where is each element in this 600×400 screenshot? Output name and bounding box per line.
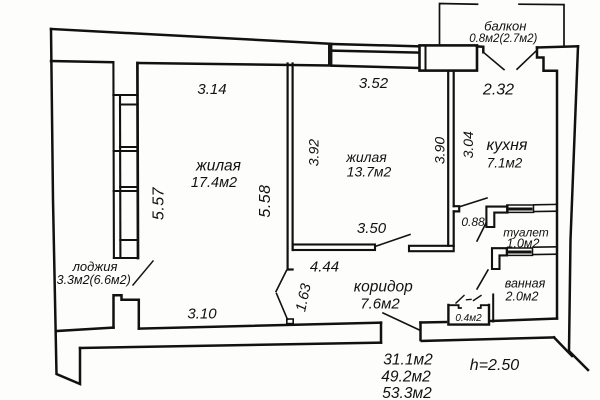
svg-text:0.88: 0.88 (461, 215, 485, 229)
svg-text:3.3м2(6.6м2): 3.3м2(6.6м2) (57, 273, 131, 287)
svg-text:балкон: балкон (484, 19, 526, 34)
svg-text:жилая: жилая (195, 158, 241, 175)
svg-text:3.14: 3.14 (197, 81, 226, 98)
svg-text:h=2.50: h=2.50 (470, 357, 519, 374)
svg-text:7.6м2: 7.6м2 (360, 296, 400, 313)
svg-text:ванная: ванная (505, 277, 546, 291)
svg-text:1.63: 1.63 (293, 282, 315, 313)
svg-text:0.8м2(2.7м2): 0.8м2(2.7м2) (469, 33, 537, 45)
svg-text:53.3м2: 53.3м2 (382, 385, 432, 400)
svg-text:3.92: 3.92 (306, 139, 322, 166)
svg-text:жилая: жилая (345, 149, 387, 165)
svg-text:2.0м2: 2.0м2 (505, 290, 539, 304)
svg-text:3.90: 3.90 (432, 137, 448, 164)
svg-text:4.44: 4.44 (310, 259, 339, 276)
svg-text:31.1м2: 31.1м2 (383, 352, 433, 369)
svg-text:3.52: 3.52 (359, 75, 389, 92)
svg-text:лоджия: лоджия (72, 259, 118, 274)
svg-text:коридор: коридор (354, 279, 413, 296)
svg-text:5.57: 5.57 (151, 186, 168, 220)
svg-text:13.7м2: 13.7м2 (347, 164, 392, 180)
svg-text:кухня: кухня (487, 137, 528, 154)
svg-text:17.4м2: 17.4м2 (191, 175, 237, 191)
svg-text:3.04: 3.04 (460, 131, 476, 158)
svg-text:1.0м2: 1.0м2 (507, 237, 540, 251)
svg-text:49.2м2: 49.2м2 (381, 369, 431, 386)
svg-text:0.4м2: 0.4м2 (455, 313, 482, 324)
svg-text:3.50: 3.50 (357, 220, 387, 237)
svg-text:5.58: 5.58 (257, 184, 274, 217)
svg-text:7.1м2: 7.1м2 (487, 156, 523, 171)
svg-text:3.10: 3.10 (187, 306, 217, 323)
svg-text:2.32: 2.32 (482, 82, 514, 99)
